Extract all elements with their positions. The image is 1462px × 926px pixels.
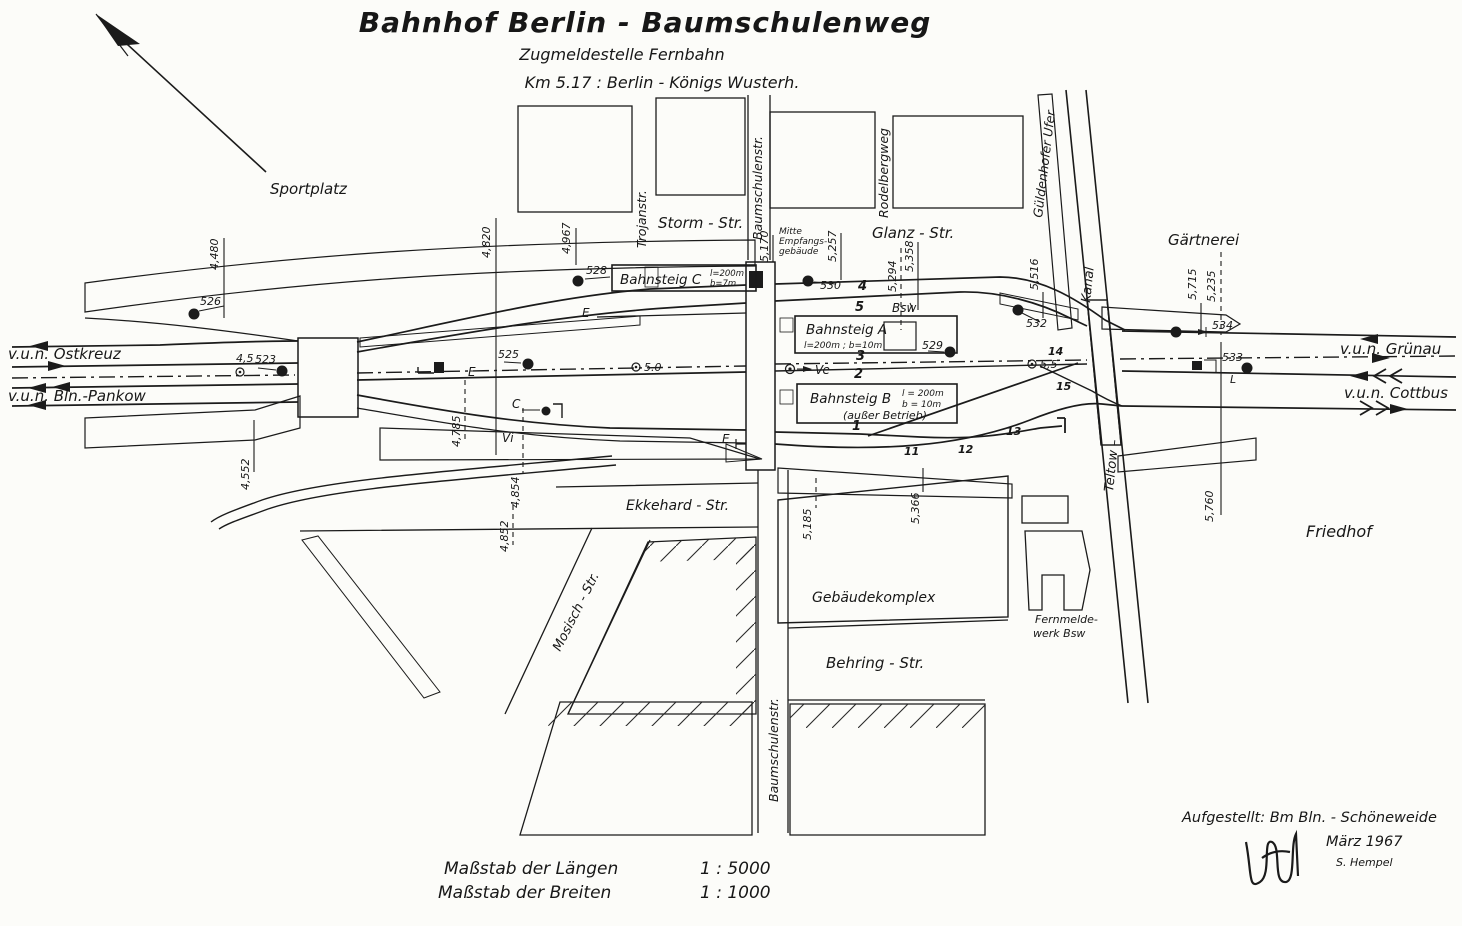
label-teltow: Teltow – xyxy=(1102,439,1122,493)
direction-arrows xyxy=(28,334,1408,414)
label-vun-ostkreuz: v.u.n. Ostkreuz xyxy=(8,345,122,363)
attribution-line1: Aufgestellt: Bm Bln. - Schöneweide xyxy=(1181,810,1437,826)
dwarf-signal-symbol xyxy=(1192,361,1202,370)
signal-label: 532 xyxy=(1026,317,1047,330)
signal-letter-c: C xyxy=(512,397,521,411)
label-storm-str: Storm - Str. xyxy=(658,214,743,232)
label-gueldenhofer-ufer: Güldenhofer Ufer xyxy=(1030,109,1058,219)
platform-b-stairs xyxy=(780,390,793,404)
teltow-canal xyxy=(1066,90,1148,703)
km-label: 4,854 xyxy=(509,477,522,509)
label-mitte-2: Empfangs- xyxy=(779,237,827,247)
platform-a-dims: l=200m ; b=10m xyxy=(804,341,882,351)
scale-length-value: 1 : 5000 xyxy=(700,859,771,879)
canal-rail-bridge xyxy=(1087,300,1121,445)
switch-number-13: 13 xyxy=(1006,425,1022,438)
signal-letter-e2: E xyxy=(582,306,590,320)
fernmeldewerk-building-large xyxy=(1025,531,1090,610)
label-baumschulenstr-bottom: Baumschulenstr. xyxy=(766,698,781,802)
km-label: 4,552 xyxy=(239,459,252,491)
signal-dot-525 xyxy=(523,359,534,370)
label-mitte-3: gebäude xyxy=(779,247,819,257)
km-label: 5,235 xyxy=(1205,271,1218,303)
signal-dot-528 xyxy=(573,276,584,287)
fernmeldewerk-building-small xyxy=(1022,496,1068,523)
km-label: 4,820 xyxy=(480,227,493,259)
plan-subtitle-2: Km 5.17 : Berlin - Königs Wusterh. xyxy=(525,73,800,92)
signal-dot-533 xyxy=(1242,363,1253,374)
km-label: 5,294 xyxy=(886,261,899,293)
title-block: Bahnhof Berlin - Baumschulenweg Zugmelde… xyxy=(359,6,932,92)
label-vun-pankow: v.u.n. Bln.-Pankow xyxy=(8,387,146,405)
scale-block: Maßstab der Längen 1 : 5000 Maßstab der … xyxy=(438,859,771,903)
km-label: 5,366 xyxy=(909,493,922,525)
road-bridges xyxy=(298,262,775,470)
label-fernmeldewerk-2: werk Bsw xyxy=(1033,627,1085,640)
signal-label: 530 xyxy=(820,279,841,292)
signal-letter-e: E xyxy=(468,365,476,379)
track-number-2: 2 xyxy=(854,367,863,382)
scale-width-value: 1 : 1000 xyxy=(700,883,771,903)
signal-dot-532 xyxy=(1013,305,1024,316)
label-sportplatz: Sportplatz xyxy=(270,180,348,198)
signal-label: 523 xyxy=(255,353,276,366)
signal-dot-523 xyxy=(277,366,288,377)
label-behring-str: Behring - Str. xyxy=(826,654,924,672)
baumschulenstrasse-bridge xyxy=(746,262,775,470)
platform-c-width: b=7m xyxy=(710,279,736,289)
km-label: 5,257 xyxy=(826,231,839,263)
signature-flourish xyxy=(1246,834,1298,884)
signal-letter-l: L xyxy=(1230,373,1236,386)
label-gebaeudekomplex: Gebäudekomplex xyxy=(812,590,936,606)
plan-title: Bahnhof Berlin - Baumschulenweg xyxy=(359,6,932,39)
west-road-bridge xyxy=(298,338,358,417)
label-mosisch-str: Mosisch - Str. xyxy=(550,570,603,654)
scanned-track-plan: 4,480 4,820 4,967 5,170 5,257 5,294 5,35… xyxy=(0,0,1462,926)
label-glanz-str: Glanz - Str. xyxy=(872,224,954,242)
axis-km-label: 4,5 xyxy=(236,352,254,365)
attribution-line2: März 1967 xyxy=(1326,834,1403,850)
dwarf-signal-symbol-e xyxy=(434,362,444,373)
signal-label: 529 xyxy=(922,339,943,352)
signal-dot-529 xyxy=(945,347,956,358)
km-label: 5,516 xyxy=(1028,259,1041,291)
label-ekkehard-str: Ekkehard - Str. xyxy=(626,498,729,514)
bsw-building xyxy=(884,322,916,350)
plan-subtitle-1: Zugmeldestelle Fernbahn xyxy=(518,45,724,64)
signal-letter-vi: Vi xyxy=(502,431,514,445)
km-label: 4,785 xyxy=(450,416,463,448)
km-label: 5,358 xyxy=(903,241,916,273)
label-kanal: Kanal xyxy=(1079,266,1098,304)
label-gaertnerei: Gärtnerei xyxy=(1168,231,1240,249)
label-vun-cottbus: v.u.n. Cottbus xyxy=(1344,384,1448,402)
label-rodelbergweg: Rodelbergweg xyxy=(876,128,891,218)
attribution-block: Aufgestellt: Bm Bln. - Schöneweide März … xyxy=(1181,810,1437,884)
switch-number-14: 14 xyxy=(1048,345,1063,358)
signal-dot-534 xyxy=(1171,327,1182,338)
km-label: 5,715 xyxy=(1186,269,1199,301)
label-fernmeldewerk-1: Fernmelde- xyxy=(1035,613,1098,626)
track-number-3: 3 xyxy=(856,349,865,364)
platform-c-name: Bahnsteig C xyxy=(620,272,702,288)
scale-length-label: Maßstab der Längen xyxy=(444,859,618,879)
embankment-bands xyxy=(85,94,1256,698)
platform-a-stairs xyxy=(780,318,793,332)
switch-number-15: 15 xyxy=(1056,380,1072,393)
label-baumschulenstr-top: Baumschulenstr. xyxy=(750,136,765,240)
map-labels: Sportplatz Trojanstr. Baumschulenstr. Ro… xyxy=(270,109,1374,802)
track-number-4: 4 xyxy=(857,279,867,294)
track-plan-drawing: 4,480 4,820 4,967 5,170 5,257 5,294 5,35… xyxy=(0,0,1462,926)
km-label: 4,480 xyxy=(208,239,221,271)
axis-km-label: 5.0 xyxy=(644,361,662,374)
label-mitte-1: Mitte xyxy=(779,227,802,237)
label-vun-gruenau: v.u.n. Grünau xyxy=(1340,340,1441,358)
km-label: 4,967 xyxy=(560,223,573,255)
north-arrow xyxy=(96,14,266,172)
signal-dot-530 xyxy=(803,276,814,287)
km-label: 5,760 xyxy=(1203,491,1216,523)
km-label: 5,185 xyxy=(801,509,814,541)
track-number-5: 5 xyxy=(855,300,864,315)
signal-label: 533 xyxy=(1222,351,1243,364)
scale-width-label: Maßstab der Breiten xyxy=(438,883,611,903)
signal-letter-ve: Ve xyxy=(815,363,830,377)
platform-b-note: (außer Betrieb) xyxy=(843,409,927,422)
signal-label: 534 xyxy=(1212,319,1233,332)
switch-number-12: 12 xyxy=(958,443,974,456)
platform-a-name: Bahnsteig A xyxy=(806,322,887,338)
signal-label: 526 xyxy=(200,295,221,308)
axis-km-label: 5,5 xyxy=(1040,358,1058,371)
bsw-label: Bsw xyxy=(892,301,916,315)
platform-b-name: Bahnsteig B xyxy=(810,391,891,407)
signal-letter-e3: E xyxy=(722,432,730,446)
buffer-stop xyxy=(1040,418,1065,433)
signal-label: 528 xyxy=(586,264,607,277)
label-friedhof: Friedhof xyxy=(1306,522,1374,541)
platform-c-length: l=200m xyxy=(710,269,744,279)
km-label: 4,852 xyxy=(498,521,511,553)
attribution-signer: S. Hempel xyxy=(1336,856,1393,869)
switch-number-11: 11 xyxy=(904,445,919,458)
signal-label: 525 xyxy=(498,348,519,361)
platform-b-length: l = 200m xyxy=(902,389,944,399)
label-trojanstr: Trojanstr. xyxy=(634,190,649,248)
signal-dot-526 xyxy=(189,309,200,320)
